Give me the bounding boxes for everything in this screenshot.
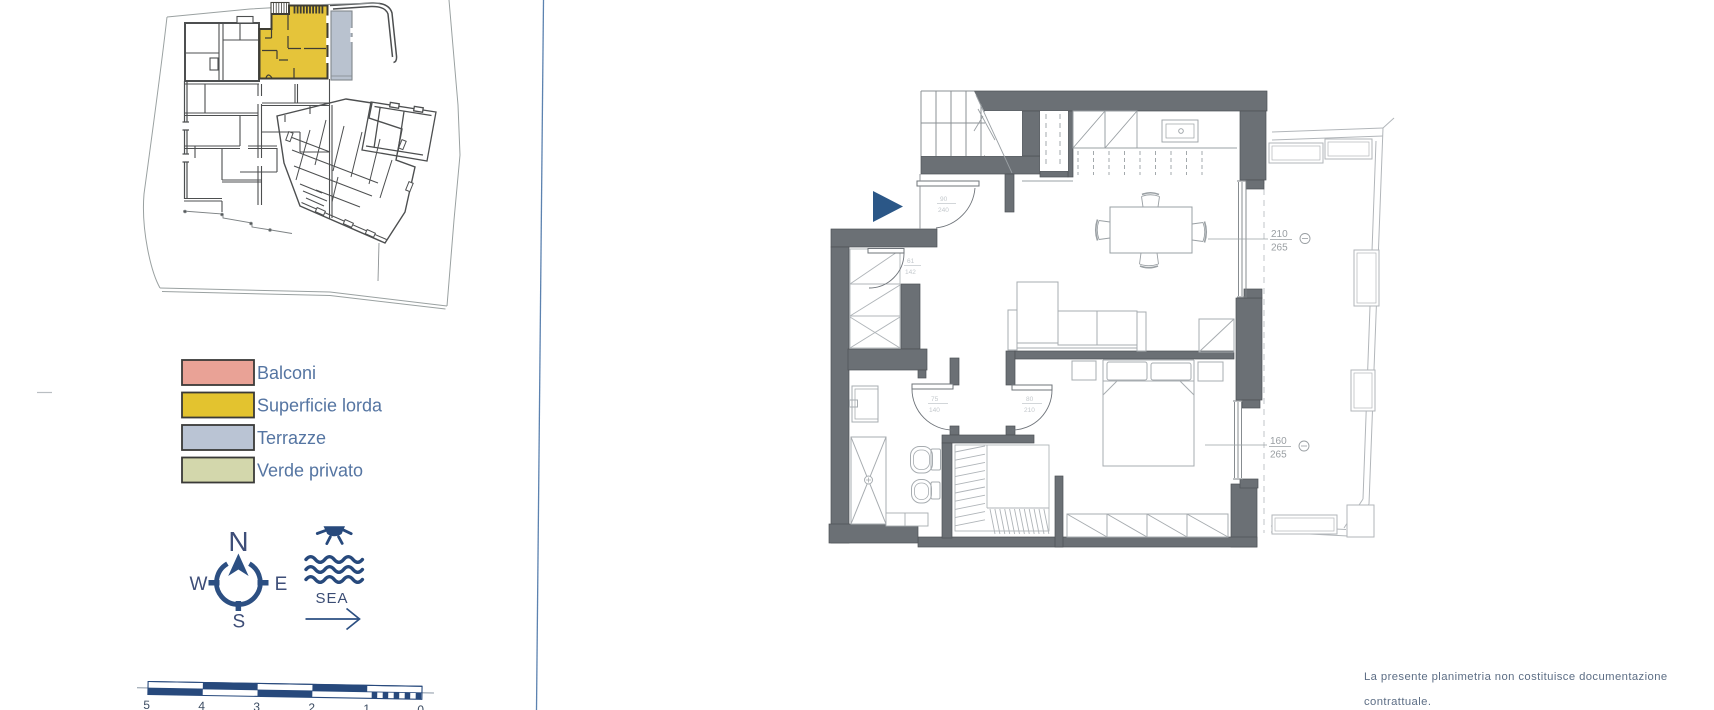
svg-text:3: 3	[253, 700, 260, 710]
svg-text:Superficie lorda: Superficie lorda	[257, 396, 383, 416]
svg-text:1: 1	[363, 702, 370, 710]
svg-text:75: 75	[931, 396, 939, 403]
svg-text:0: 0	[417, 703, 424, 710]
svg-text:240: 240	[938, 207, 949, 214]
svg-text:80: 80	[1026, 396, 1034, 403]
svg-text:S: S	[232, 612, 245, 633]
svg-text:4: 4	[198, 699, 205, 710]
svg-text:N: N	[228, 526, 248, 557]
svg-text:265: 265	[1271, 243, 1288, 254]
svg-text:La presente planimetria non co: La presente planimetria non costituisce …	[1364, 671, 1668, 683]
svg-text:SEA: SEA	[315, 590, 348, 607]
svg-text:Terrazze: Terrazze	[257, 428, 326, 448]
svg-text:61: 61	[907, 258, 915, 265]
svg-text:210: 210	[1271, 229, 1288, 240]
svg-text:E: E	[275, 574, 288, 595]
svg-text:265: 265	[1270, 450, 1287, 461]
svg-text:140: 140	[929, 407, 940, 414]
svg-text:2: 2	[308, 701, 315, 710]
svg-text:142: 142	[905, 269, 916, 276]
svg-text:Balconi: Balconi	[257, 363, 316, 383]
svg-text:Verde privato: Verde privato	[257, 461, 363, 481]
svg-text:160: 160	[1270, 436, 1287, 447]
svg-text:W: W	[190, 574, 208, 595]
svg-text:contrattuale.: contrattuale.	[1364, 696, 1431, 708]
svg-text:5: 5	[143, 698, 150, 710]
svg-text:90: 90	[940, 196, 948, 203]
svg-text:210: 210	[1024, 407, 1035, 414]
